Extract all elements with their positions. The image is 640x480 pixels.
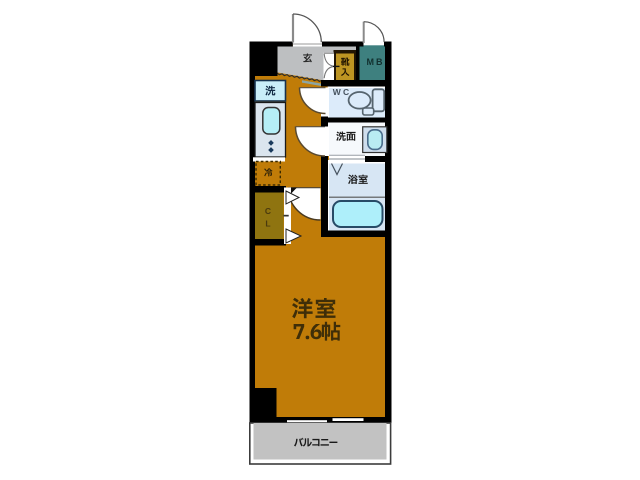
svg-text:MB: MB xyxy=(367,57,385,67)
svg-text:L: L xyxy=(265,218,270,228)
svg-text:C: C xyxy=(265,206,271,216)
svg-text:WC: WC xyxy=(333,87,352,97)
